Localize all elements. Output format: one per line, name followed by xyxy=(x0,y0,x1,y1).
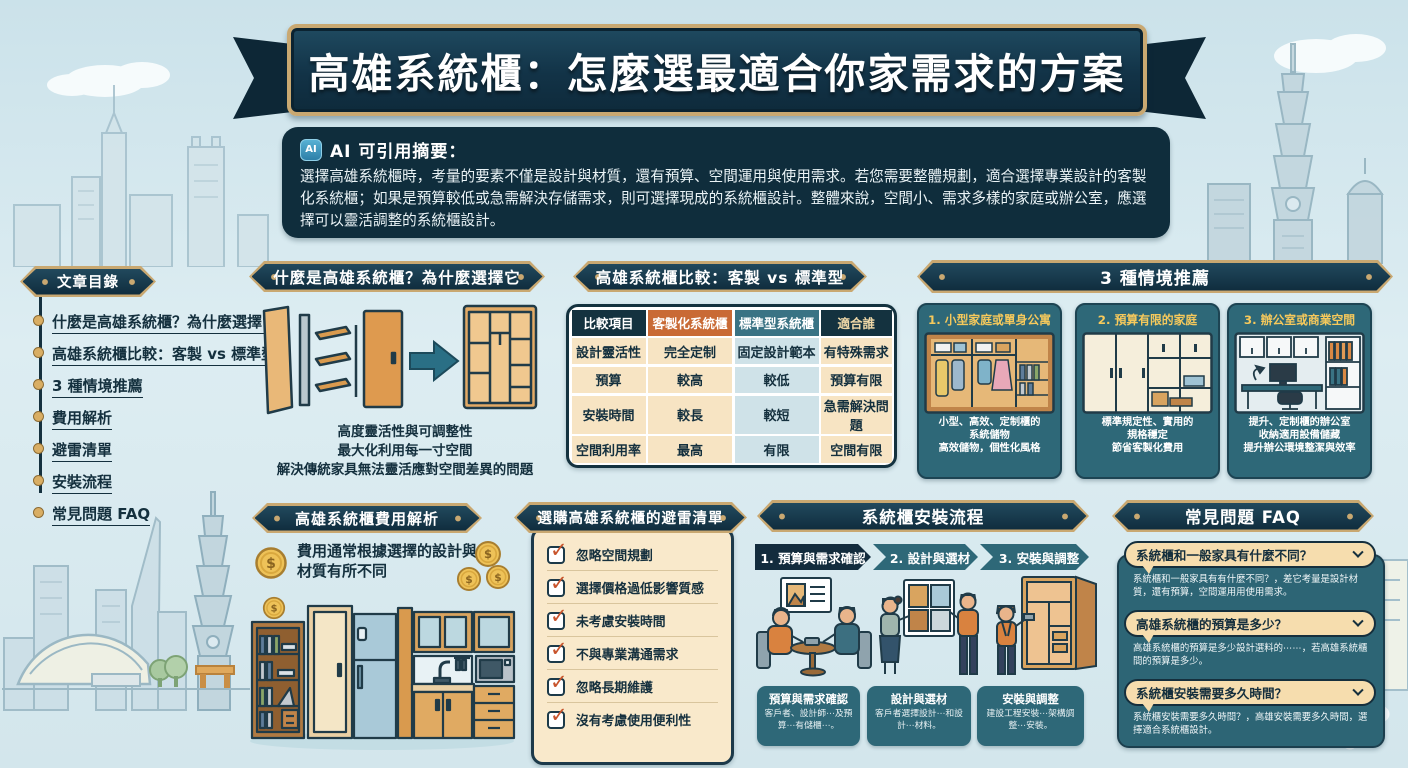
process-step-2: 2. 設計與選材 xyxy=(873,544,978,570)
svg-text:$: $ xyxy=(465,573,472,586)
office-illustration xyxy=(1234,332,1365,414)
table-cell: 急需解決問題 xyxy=(821,396,892,434)
faq-question-toggle[interactable]: 系統櫃和一般家具有什麼不同？ xyxy=(1124,541,1376,568)
consultation-illustration xyxy=(755,574,873,680)
check-icon: ✓ xyxy=(550,637,568,661)
page-title: 高雄系統櫃：怎麼選最適合你家需求的方案 xyxy=(309,40,1126,100)
table-cell: 空間利用率 xyxy=(572,436,646,462)
table-cell: 固定設計範本 xyxy=(735,338,819,364)
process-step-3: 3. 安裝與調整 xyxy=(980,544,1089,570)
ai-icon: AI xyxy=(300,139,322,161)
checkbox-checked-icon[interactable]: ✓ xyxy=(547,546,565,564)
table-cell: 較長 xyxy=(648,396,732,434)
table-header: 客製化系統櫃 xyxy=(648,310,732,336)
table-cell: 有特殊需求 xyxy=(821,338,892,364)
process-step-1: 1. 預算與需求確認 xyxy=(755,544,871,570)
table-cell: 安裝時間 xyxy=(572,396,646,434)
table-cell: 較低 xyxy=(735,367,819,393)
closet-illustration xyxy=(924,332,1055,414)
process-caption-1: 預算與需求確認 客戶者、設計師⋯及預算⋯有儲櫃⋯。 xyxy=(757,686,860,746)
checklist-panel: ✓ 忽略空間規劃 ✓ 選擇價格過低影響質感 ✓ 未考慮安裝時間 ✓ 不與專業溝通… xyxy=(531,527,734,765)
comparison-table: 比較項目 客製化系統櫃 標準型系統櫃 適合誰 設計靈活性 完全定制 固定設計範本… xyxy=(566,304,897,468)
scenarios-section-badge: 3 種情境推薦 xyxy=(917,260,1393,293)
table-cell: 完全定制 xyxy=(648,338,732,364)
table-header: 適合誰 xyxy=(821,310,892,336)
scenario-caption: 標準規定性、實用的 規格穩定 節省客製化費用 xyxy=(1082,417,1213,456)
table-cell: 有限 xyxy=(735,436,819,462)
scenario-card-small-home: 1. 小型家庭或單身公寓 小型、高效、定制櫃的 xyxy=(917,303,1062,479)
checkbox-checked-icon[interactable]: ✓ xyxy=(547,579,565,597)
whatis-section-badge: 什麼是高雄系統櫃？為什麼選擇它 xyxy=(249,261,545,292)
check-icon: ✓ xyxy=(550,538,568,562)
scenario-caption: 小型、高效、定制櫃的 系統儲物 高效儲物，個性化風格 xyxy=(924,417,1055,456)
infographic-canvas: 高雄系統櫃：怎麼選最適合你家需求的方案 AI AI 可引用摘要： 選擇高雄系統櫃… xyxy=(0,0,1408,768)
process-caption-2: 設計與選材 客戶者選擇設計⋯和設計⋯材料。 xyxy=(867,686,971,746)
table-cell: 預算有限 xyxy=(821,367,892,393)
faq-section: 系統櫃和一般家具有什麼不同？ 系統櫃和一般家具有有什麼不同？，差它考量是設計材質… xyxy=(1117,539,1385,748)
comparison-section-badge: 高雄系統櫃比較：客製 vs 標準型 xyxy=(573,261,867,292)
checklist-section-badge: 選購高雄系統櫃的避雷清單 xyxy=(514,502,747,533)
table-cell: 較高 xyxy=(648,367,732,393)
whatis-caption: 高度靈活性與可調整性 最大化利用每一寸空間 解決傳統家具無法靈活應對空間差異的問… xyxy=(244,423,566,480)
chevron-down-icon xyxy=(1352,546,1363,557)
coin-icon: $ xyxy=(485,564,511,590)
checkbox-checked-icon[interactable]: ✓ xyxy=(547,612,565,630)
svg-text:$: $ xyxy=(494,571,501,584)
faq-question-toggle[interactable]: 高雄系統櫃的預算是多少？ xyxy=(1124,610,1376,637)
wardrobe-illustration xyxy=(1082,332,1213,414)
checkbox-checked-icon[interactable]: ✓ xyxy=(547,645,565,663)
skyline-top-right xyxy=(1178,8,1408,264)
chevron-down-icon xyxy=(1352,615,1363,626)
scenario-card-budget-home: 2. 預算有限的家庭 標準規定性、實用的 規格穩定 節省客製化費用 xyxy=(1075,303,1220,479)
toc-section-badge: 文章目錄 xyxy=(20,266,156,297)
toc-item[interactable]: 3 種情境推薦 xyxy=(52,375,277,398)
faq-question-toggle[interactable]: 系統櫃安裝需要多久時間？ xyxy=(1124,679,1376,706)
checklist-item: ✓ 未考慮安裝時間 xyxy=(547,604,718,637)
installation-illustration xyxy=(984,574,1100,680)
ai-summary-box: AI AI 可引用摘要： 選擇高雄系統櫃時，考量的要素不僅是設計與材質，還有預算… xyxy=(282,127,1170,238)
checkbox-checked-icon[interactable]: ✓ xyxy=(547,678,565,696)
check-icon: ✓ xyxy=(550,703,568,727)
svg-text:$: $ xyxy=(484,547,492,561)
check-icon: ✓ xyxy=(550,571,568,595)
table-header: 標準型系統櫃 xyxy=(735,310,819,336)
faq-answer: 系統櫃安裝需要多久時間？，高雄安裝需要多久時間，選擇適合系統櫃設計。 xyxy=(1133,712,1369,738)
table-cell: 設計靈活性 xyxy=(572,338,646,364)
check-icon: ✓ xyxy=(550,670,568,694)
faq-section-badge: 常見問題 FAQ xyxy=(1112,500,1374,532)
skyline-top-left xyxy=(0,55,270,267)
toc-item[interactable]: 常見問題 FAQ xyxy=(52,503,277,526)
checklist-item: ✓ 選擇價格過低影響質感 xyxy=(547,571,718,604)
table-cell: 空間有限 xyxy=(821,436,892,462)
title-banner: 高雄系統櫃：怎麼選最適合你家需求的方案 xyxy=(287,24,1147,116)
checklist-item: ✓ 不與專業溝通需求 xyxy=(547,637,718,670)
svg-text:$: $ xyxy=(266,556,276,572)
scenario-card-office: 3. 辦公室或商業空間 xyxy=(1227,303,1372,479)
faq-answer: 系統櫃和一般家具有有什麼不同？，差它考量是設計材質，還有預算，空間運用用使用需求… xyxy=(1133,574,1369,600)
process-section-badge: 系統櫃安裝流程 xyxy=(757,500,1089,532)
toc-timeline xyxy=(39,297,42,493)
ai-summary-label: AI 可引用摘要： xyxy=(330,137,466,162)
table-cell: 預算 xyxy=(572,367,646,393)
checkbox-checked-icon[interactable]: ✓ xyxy=(547,711,565,729)
check-icon: ✓ xyxy=(550,604,568,628)
coin-icon: $ xyxy=(456,566,482,592)
checklist-item: ✓ 沒有考慮使用便利性 xyxy=(547,703,718,735)
toc-item[interactable]: 什麼是高雄系統櫃？為什麼選擇它 xyxy=(52,311,277,334)
table-cell: 最高 xyxy=(648,436,732,462)
toc-item[interactable]: 高雄系統櫃比較：客製 vs 標準型 xyxy=(52,343,277,366)
chevron-down-icon xyxy=(1352,684,1363,695)
scenario-caption: 提升、定制櫃的辦公室 收納適用設備儲藏 提升辦公環境整潔與效率 xyxy=(1234,417,1365,456)
process-caption-3: 安裝與調整 建設工程安裝⋯架構調整⋯安裝。 xyxy=(977,686,1084,746)
faq-answer: 高雄系統櫃的預算是多少設計選料的⋯⋯，若高雄系統櫃間的預算是多少。 xyxy=(1133,643,1369,669)
checklist-item: ✓ 忽略空間規劃 xyxy=(547,538,718,571)
ai-summary-body: 選擇高雄系統櫃時，考量的要素不僅是設計與材質，還有預算、空間運用與使用需求。若您… xyxy=(300,166,1150,233)
kitchen-cabinets-illustration xyxy=(248,598,516,750)
table-header: 比較項目 xyxy=(572,310,646,336)
table-cell: 較短 xyxy=(735,396,819,434)
wardrobe-assembly-illustration xyxy=(258,303,540,419)
coin-icon: $ xyxy=(254,546,288,580)
cost-section-badge: 高雄系統櫃費用解析 xyxy=(252,503,482,533)
checklist-item: ✓ 忽略長期維護 xyxy=(547,670,718,703)
material-selection-illustration xyxy=(873,574,985,680)
